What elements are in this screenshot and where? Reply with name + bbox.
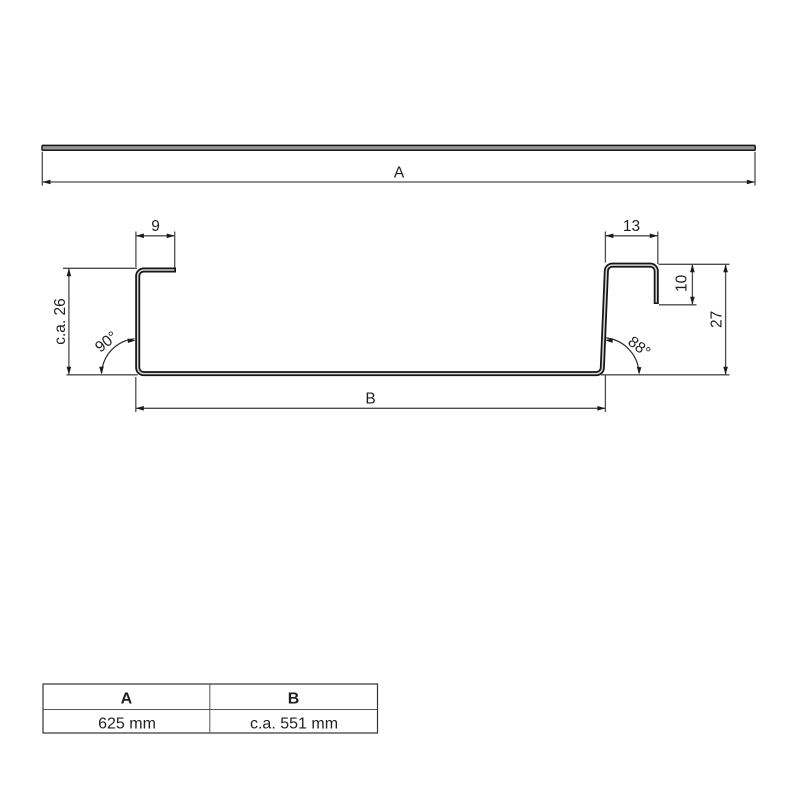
svg-text:9: 9 xyxy=(151,218,160,235)
svg-text:10: 10 xyxy=(673,274,690,292)
svg-text:13: 13 xyxy=(623,218,640,235)
svg-text:A: A xyxy=(121,690,133,707)
svg-text:B: B xyxy=(365,391,375,408)
svg-text:A: A xyxy=(394,164,405,181)
svg-text:B: B xyxy=(288,690,300,707)
svg-text:c.a. 26: c.a. 26 xyxy=(52,298,69,345)
svg-text:27: 27 xyxy=(709,311,726,328)
svg-text:625 mm: 625 mm xyxy=(98,716,156,733)
svg-text:c.a. 551 mm: c.a. 551 mm xyxy=(250,716,338,733)
